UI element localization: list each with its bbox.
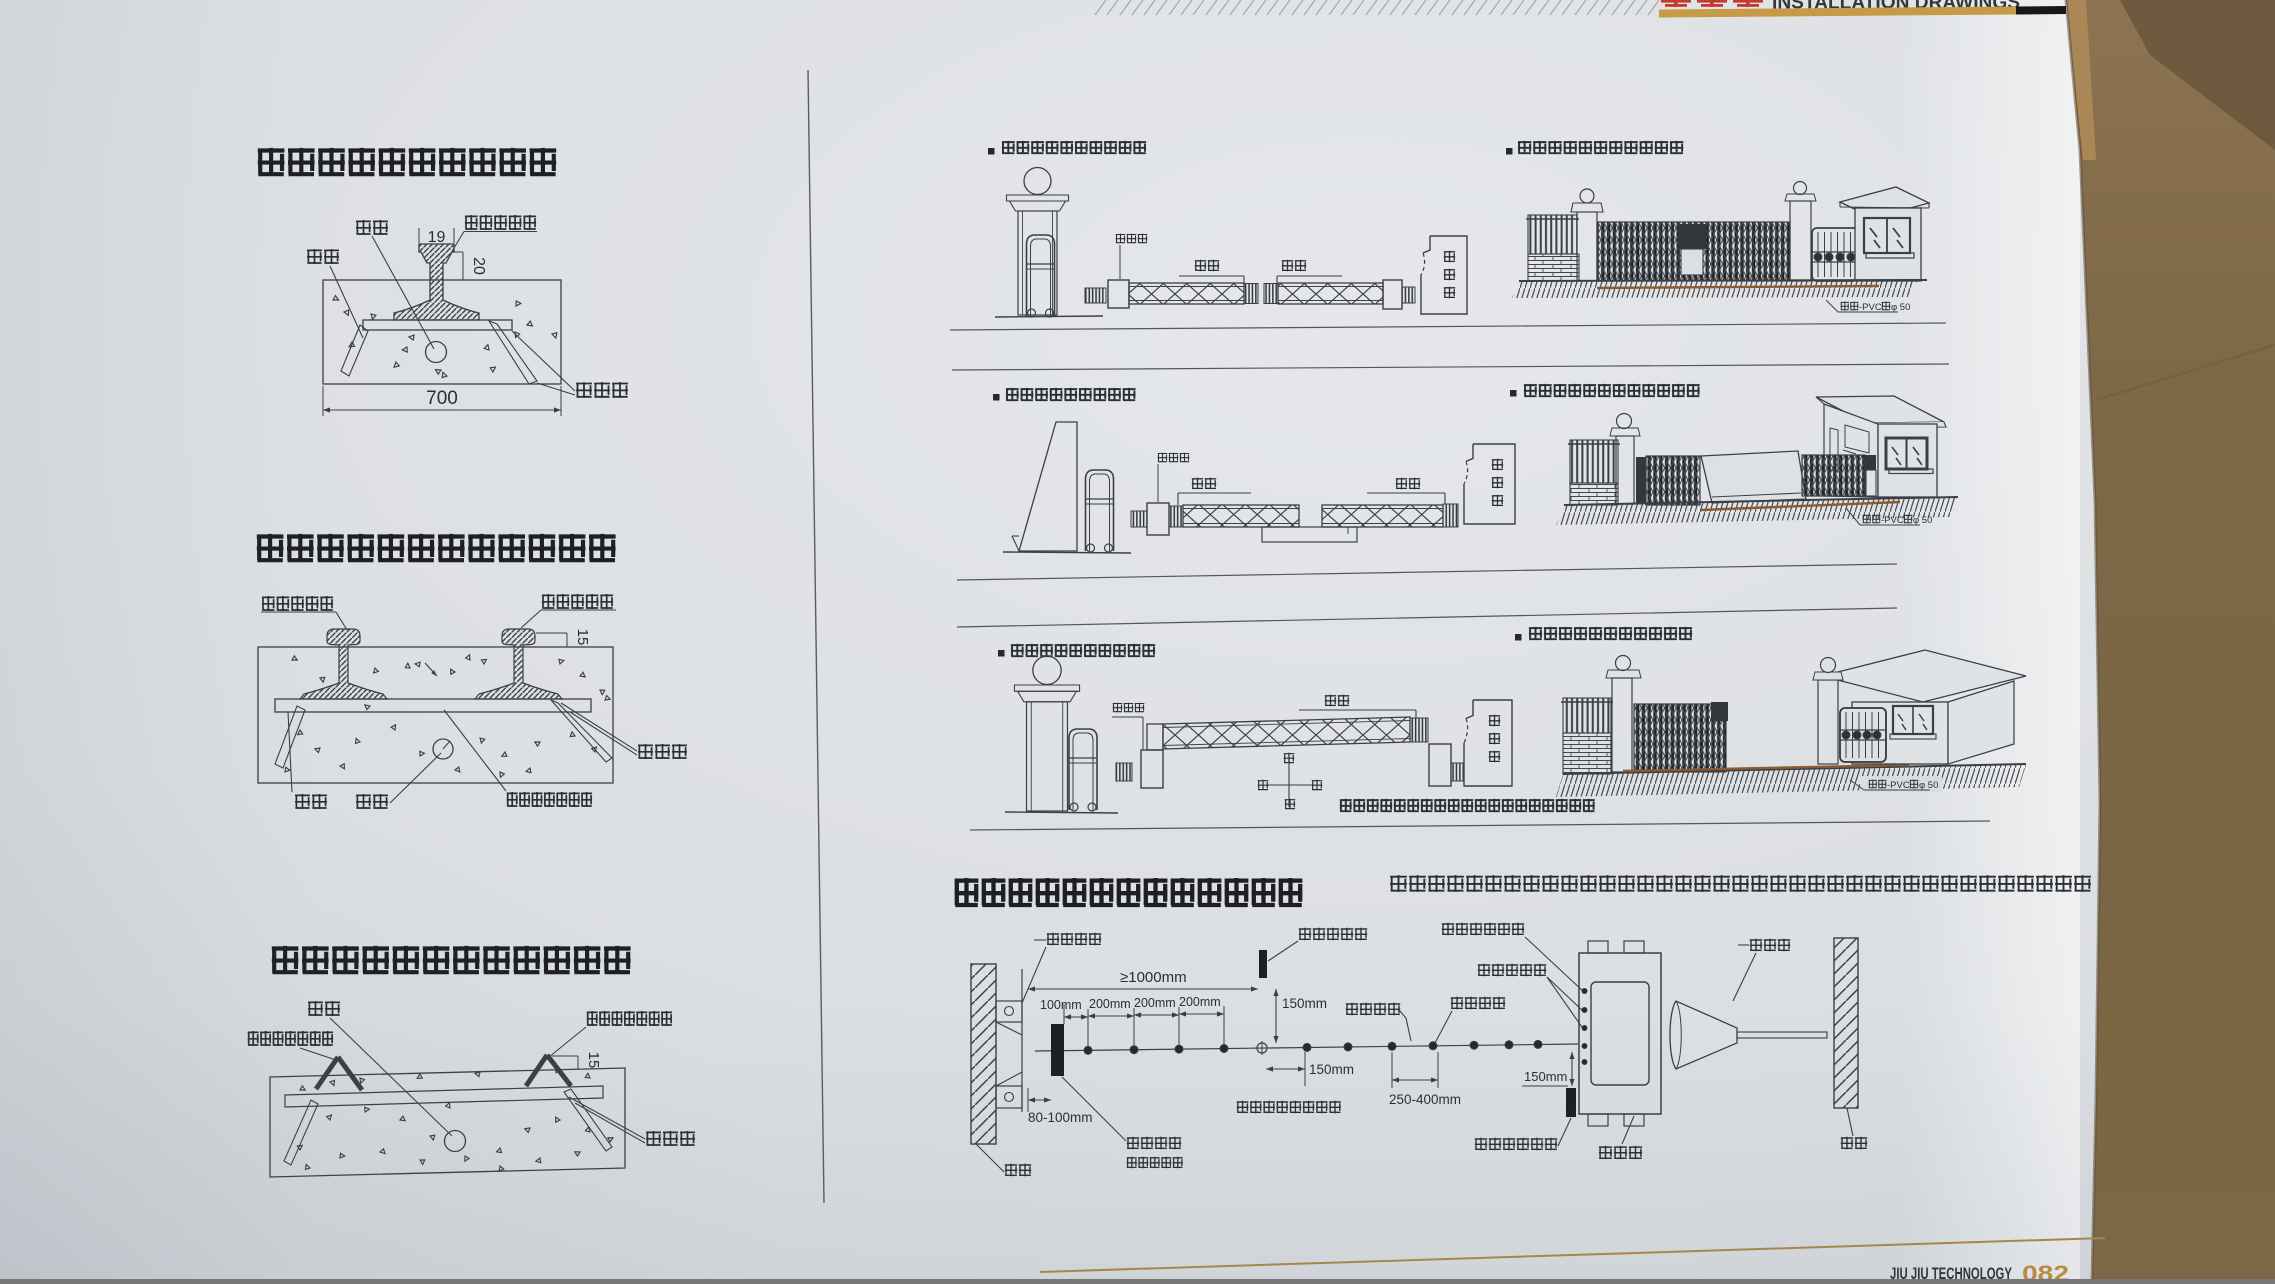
svg-text:700: 700 — [426, 388, 458, 409]
svg-text:φ 50: φ 50 — [1919, 780, 1938, 791]
svg-text:-PVC: -PVC — [1887, 780, 1910, 791]
svg-text:-PVC: -PVC — [1859, 302, 1882, 313]
svg-text:20: 20 — [470, 257, 487, 275]
svg-text:-PVC: -PVC — [1881, 515, 1904, 526]
svg-text:15: 15 — [574, 629, 591, 646]
svg-text:19: 19 — [428, 229, 446, 246]
svg-text:≥1000mm: ≥1000mm — [1120, 969, 1187, 986]
svg-text:φ 50: φ 50 — [1913, 515, 1932, 526]
svg-text:φ 50: φ 50 — [1891, 302, 1910, 313]
